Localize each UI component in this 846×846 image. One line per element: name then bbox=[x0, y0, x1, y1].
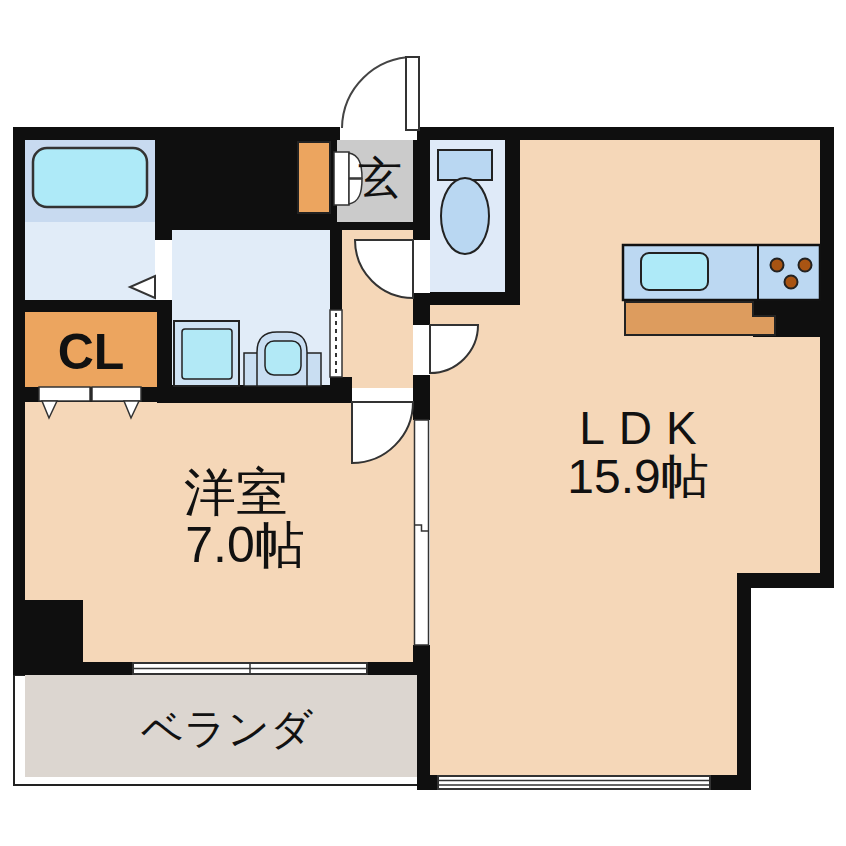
wall-top-right bbox=[417, 127, 834, 140]
wall-toilet-right bbox=[505, 140, 520, 305]
wall-step-vertical bbox=[737, 573, 751, 790]
bathroom-doorway bbox=[155, 240, 172, 300]
kitchen-sink bbox=[641, 253, 708, 290]
ldk-size-label: 15.9帖 bbox=[567, 450, 708, 503]
western-room-label: 洋室 bbox=[184, 463, 288, 521]
wall-right bbox=[820, 127, 834, 588]
entrance-door-leaf bbox=[406, 57, 419, 130]
wall-left bbox=[13, 127, 25, 675]
vanity-basin bbox=[265, 341, 301, 375]
wall-washroom-bottom bbox=[157, 385, 352, 403]
wall-hall-corner bbox=[330, 377, 352, 403]
wall-top-left bbox=[13, 127, 340, 140]
closet-door-panel-left bbox=[39, 387, 90, 401]
sliding-partition bbox=[415, 420, 429, 645]
veranda-label: ベランダ bbox=[141, 705, 313, 752]
floorplan-svg: 玄 CL 洋室 7.0帖 LDK 15.9帖 ベランダ bbox=[0, 0, 846, 846]
wall-toilet-bottom bbox=[413, 292, 520, 305]
toilet-doorway bbox=[413, 240, 430, 293]
bathtub bbox=[33, 148, 147, 207]
entrance-label: 玄 bbox=[358, 153, 402, 202]
stove-burner-2 bbox=[799, 259, 812, 272]
shoe-cabinet bbox=[298, 142, 330, 213]
wall-below-bathroom bbox=[13, 300, 172, 312]
wall-washroom-right bbox=[330, 222, 342, 310]
wall-veranda-right bbox=[417, 662, 430, 790]
ldk-label: LDK bbox=[579, 402, 710, 454]
wall-pillar-bottom-left bbox=[13, 600, 83, 662]
ldk-window bbox=[438, 776, 710, 789]
western-room-doorway bbox=[352, 388, 413, 402]
toilet-bowl bbox=[441, 178, 489, 254]
closet-label: CL bbox=[58, 324, 125, 380]
closet-door-panel-right bbox=[92, 387, 141, 401]
toilet-tank bbox=[438, 150, 492, 180]
wall-step-horizontal bbox=[737, 573, 834, 588]
kitchen-cabinet bbox=[625, 302, 775, 335]
washroom-accordion-door bbox=[330, 310, 342, 377]
stove-burner-3 bbox=[785, 276, 798, 289]
bifold-door-panel bbox=[334, 152, 349, 205]
ldk-doorway bbox=[413, 325, 430, 375]
stove-burner-1 bbox=[771, 259, 784, 272]
floorplan-canvas: 玄 CL 洋室 7.0帖 LDK 15.9帖 ベランダ bbox=[0, 0, 846, 846]
western-room-size-label: 7.0帖 bbox=[185, 517, 305, 573]
washing-machine-pan-inner bbox=[182, 329, 232, 379]
